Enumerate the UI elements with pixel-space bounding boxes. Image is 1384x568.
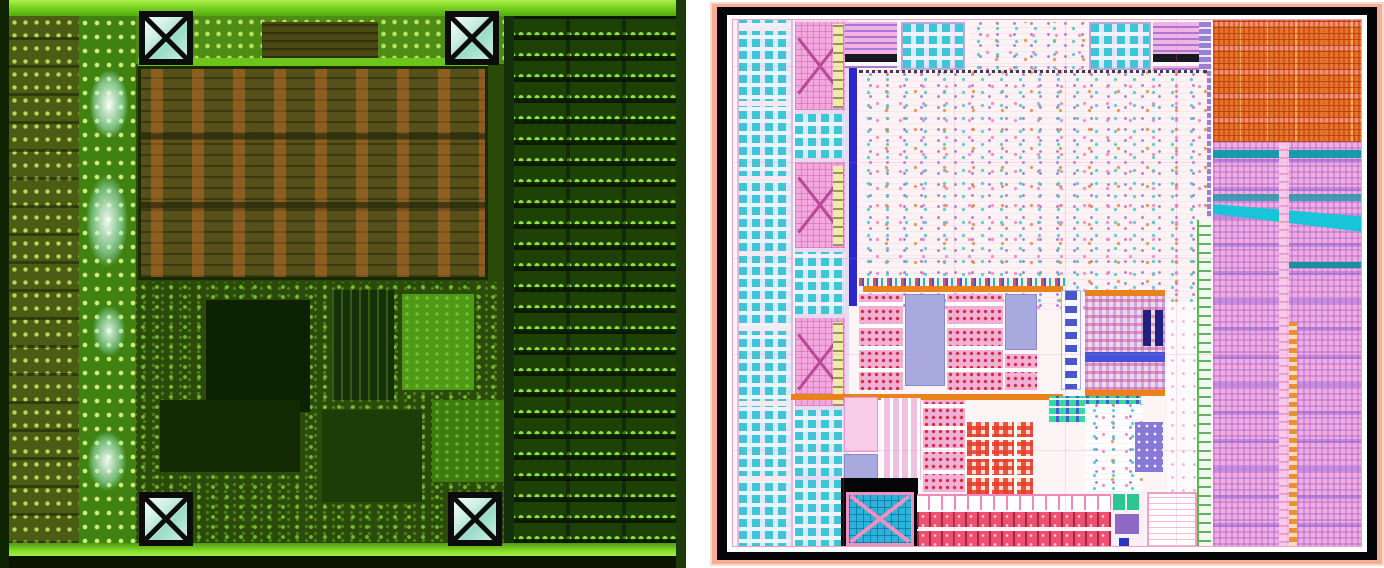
power-strip: [833, 166, 843, 246]
top-cell-block: [901, 22, 965, 70]
navy-bar: [1143, 310, 1151, 346]
die-bottom-edge: [0, 556, 686, 568]
layout-core-region: [859, 70, 1207, 310]
mixed-cell-block: [1085, 290, 1165, 390]
logic-bright-block: [402, 294, 474, 390]
die-bottom-seal-ring: [0, 543, 686, 557]
layout-white-margin: [727, 15, 1367, 552]
orange-power-bar: [1085, 290, 1165, 296]
pink-cell-block: [859, 294, 903, 390]
top-pink-block: [1153, 22, 1201, 70]
fiducial-marker-top-left: [139, 11, 193, 65]
die-left-cell-column: [9, 16, 79, 544]
die-memory-macro: [138, 66, 488, 280]
lavender-macro: [1005, 294, 1037, 350]
layout-analog-cluster: [789, 278, 1169, 494]
cap-row-white: [917, 494, 1115, 510]
purple-macro: [1135, 422, 1163, 472]
die-photo-panel: [0, 0, 686, 568]
layout-cap-strip: [917, 494, 1115, 547]
die-right-edge: [676, 0, 686, 568]
pink-cell-block: [1005, 354, 1037, 390]
orange-power-bar: [863, 286, 1063, 292]
die-top-dark-block: [262, 22, 378, 58]
small-cell-group: [1111, 492, 1145, 547]
die-left-pad-column: [79, 16, 136, 544]
tick-row: [859, 278, 1069, 286]
logic-dark-block: [206, 300, 310, 412]
lavender-macro: [905, 294, 945, 386]
die-standard-cell-rows: [514, 16, 676, 544]
cap-row-red: [917, 510, 1115, 527]
power-strip: [833, 24, 843, 108]
fiducial-marker-bottom-left: [139, 492, 193, 546]
layout-io-pad-column: [737, 20, 793, 547]
teal-band: [1289, 262, 1362, 268]
cap-row-red: [917, 529, 1115, 546]
pink-channel: [1279, 142, 1289, 547]
layout-blue-rail: [849, 66, 857, 306]
fiducial-marker-top-right: [445, 11, 499, 65]
layout-memory-column: [1213, 142, 1362, 547]
pad-cell-block: [795, 114, 845, 158]
alignment-pad-x: [846, 492, 914, 546]
layout-black-corner: [841, 478, 918, 547]
pink-macro: [844, 397, 878, 452]
red-cap-array: [967, 422, 1033, 494]
die-left-edge: [0, 0, 9, 568]
orange-channel: [1289, 322, 1297, 547]
top-pink-block: [845, 22, 897, 68]
logic-dark-block: [322, 410, 422, 502]
layout-white-table: [1147, 492, 1197, 547]
logic-bright-block: [432, 400, 504, 482]
filler-cell-column: [1197, 220, 1211, 547]
layout-rom-region: [1213, 20, 1362, 142]
logic-dark-block: [160, 400, 300, 472]
striped-block: [881, 398, 921, 480]
fiducial-marker-bottom-right: [448, 492, 502, 546]
ladder-column: [1061, 290, 1081, 390]
top-cell-block: [1089, 22, 1151, 70]
top-speckle-strip: [969, 22, 1087, 70]
layout-content: [732, 19, 1362, 547]
teal-cell: [1127, 494, 1139, 510]
navy-bar: [1155, 310, 1163, 346]
chip-figure: [0, 0, 1384, 568]
purple-cell: [1115, 514, 1139, 534]
die-top-seal-ring: [0, 0, 686, 16]
pink-cell-block: [923, 400, 965, 492]
blue-band: [1085, 352, 1165, 362]
teal-cell: [1113, 494, 1125, 510]
layout-panel: [710, 2, 1384, 566]
logic-striped-block: [332, 290, 394, 400]
blue-cell: [1119, 538, 1129, 546]
die-column-divider: [504, 16, 514, 544]
layout-black-frame: [717, 7, 1377, 560]
pink-cell-block: [947, 294, 1003, 390]
